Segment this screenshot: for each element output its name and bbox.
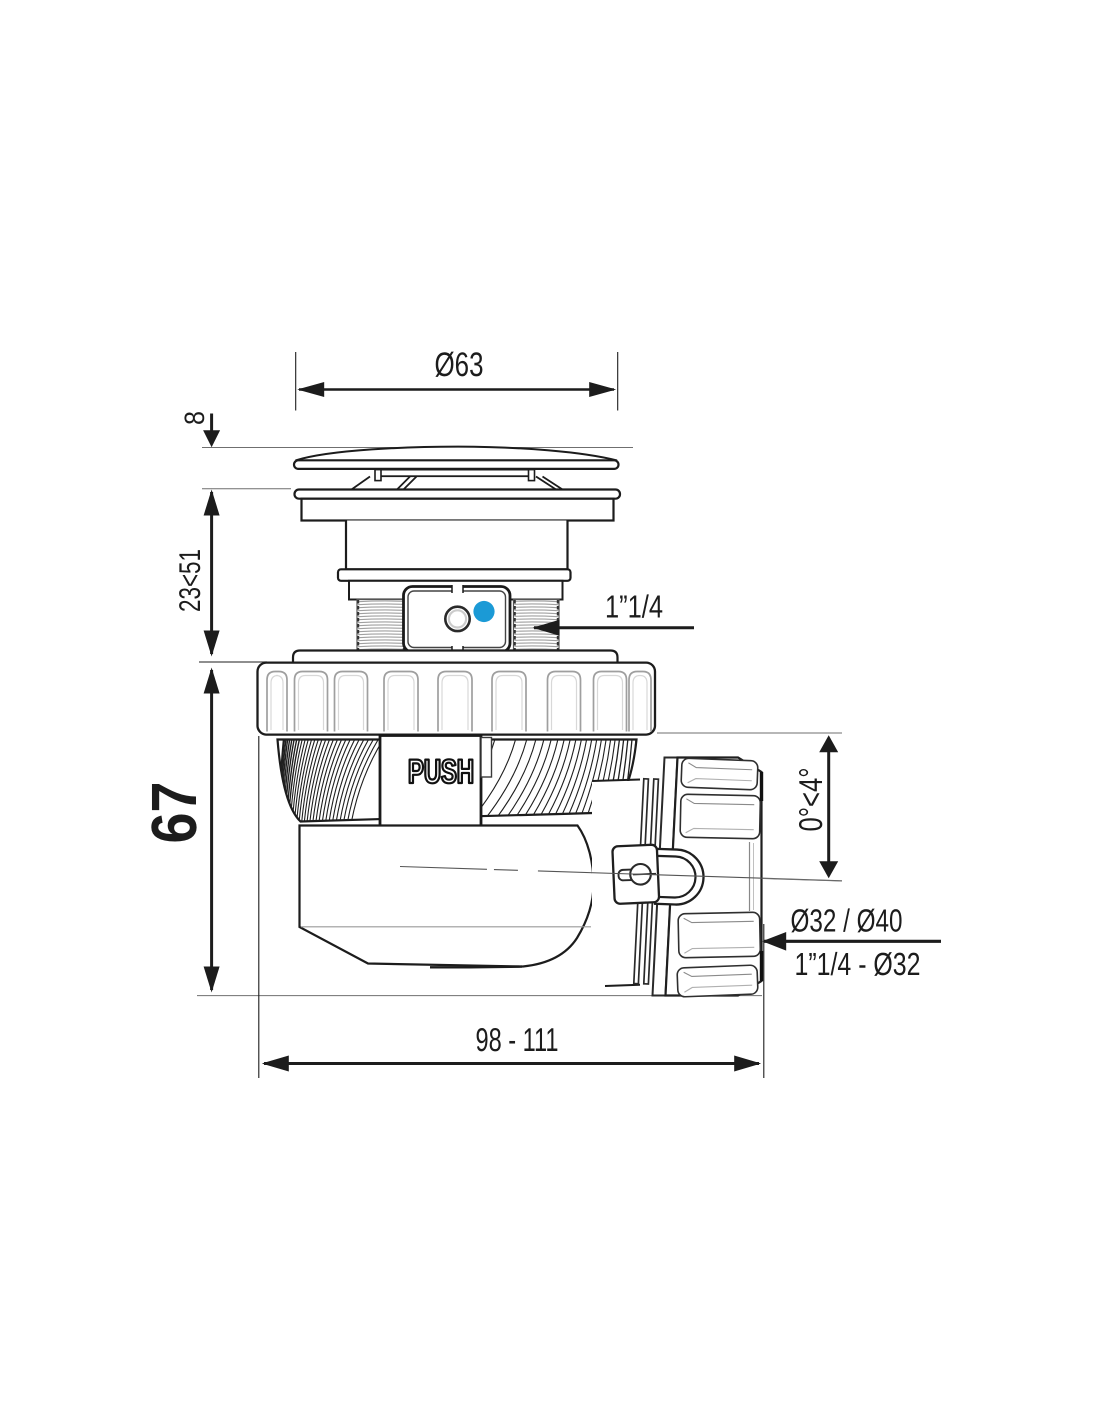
svg-text:Ø32 / Ø40: Ø32 / Ø40 <box>791 903 903 939</box>
svg-text:8: 8 <box>179 411 210 425</box>
svg-text:1”1/4: 1”1/4 <box>605 589 663 625</box>
svg-text:1”1/4 - Ø32: 1”1/4 - Ø32 <box>795 946 921 982</box>
svg-text:0°<4°: 0°<4° <box>792 768 829 832</box>
svg-text:23<51: 23<51 <box>174 549 207 612</box>
svg-text:67: 67 <box>138 782 210 844</box>
svg-text:Ø63: Ø63 <box>435 346 484 384</box>
svg-text:98 - 111: 98 - 111 <box>476 1021 559 1058</box>
